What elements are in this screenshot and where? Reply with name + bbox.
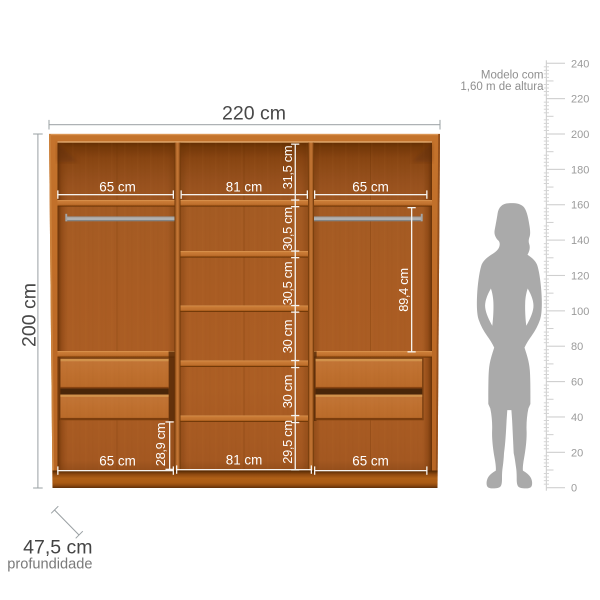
svg-text:65 cm: 65 cm	[352, 180, 388, 195]
svg-text:60: 60	[571, 377, 583, 389]
svg-text:65 cm: 65 cm	[352, 454, 388, 469]
svg-text:profundidade: profundidade	[7, 556, 92, 572]
svg-text:65 cm: 65 cm	[99, 454, 135, 469]
svg-text:20: 20	[571, 447, 583, 459]
svg-text:81 cm: 81 cm	[226, 453, 262, 468]
svg-text:89,4 cm: 89,4 cm	[396, 268, 411, 311]
svg-text:40: 40	[571, 412, 583, 424]
svg-text:220: 220	[571, 94, 589, 106]
svg-text:81 cm: 81 cm	[226, 180, 262, 195]
svg-text:30 cm: 30 cm	[280, 375, 295, 408]
svg-text:100: 100	[571, 306, 589, 318]
svg-text:65 cm: 65 cm	[99, 180, 135, 195]
svg-text:30 cm: 30 cm	[280, 320, 295, 353]
svg-text:47,5 cm: 47,5 cm	[23, 537, 92, 559]
svg-text:0: 0	[571, 483, 577, 495]
svg-text:Modelo com: Modelo com	[481, 70, 544, 82]
svg-text:180: 180	[571, 164, 589, 176]
svg-text:1,60 m de altura: 1,60 m de altura	[460, 81, 544, 93]
svg-text:30,5 cm: 30,5 cm	[280, 262, 295, 305]
svg-text:220 cm: 220 cm	[222, 103, 286, 125]
svg-text:200: 200	[571, 129, 589, 141]
svg-text:30,5 cm: 30,5 cm	[280, 207, 295, 250]
svg-text:29,5 cm: 29,5 cm	[280, 420, 295, 463]
svg-text:240: 240	[571, 58, 589, 70]
svg-text:31,5 cm: 31,5 cm	[280, 146, 295, 189]
svg-text:120: 120	[571, 271, 589, 283]
svg-text:80: 80	[571, 341, 583, 353]
svg-text:28,9 cm: 28,9 cm	[153, 423, 168, 466]
svg-text:140: 140	[571, 235, 589, 247]
svg-text:160: 160	[571, 200, 589, 212]
svg-text:200 cm: 200 cm	[19, 283, 41, 347]
